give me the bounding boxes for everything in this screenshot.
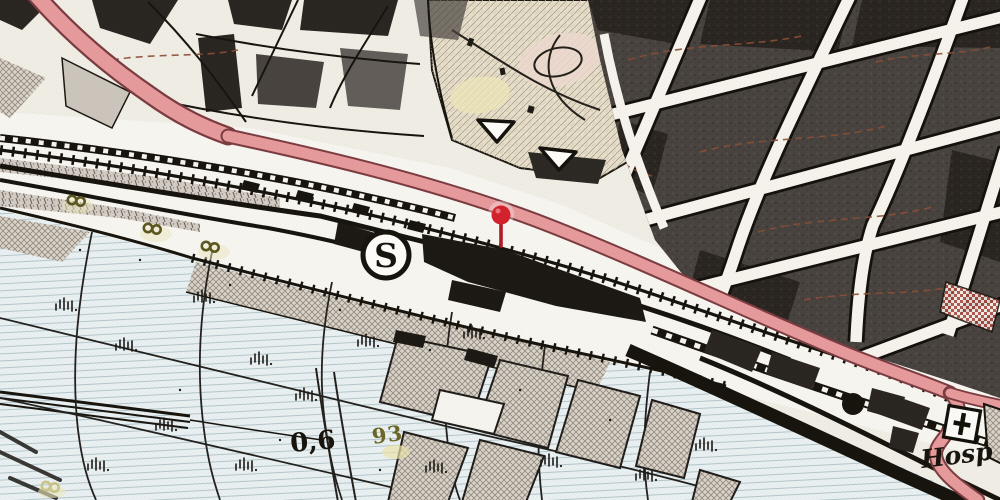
paper-texture-overlay	[0, 0, 1000, 500]
map-canvas[interactable]: S Hosp 0,6 93	[0, 0, 1000, 500]
historical-map: S Hosp 0,6 93	[0, 0, 1000, 500]
